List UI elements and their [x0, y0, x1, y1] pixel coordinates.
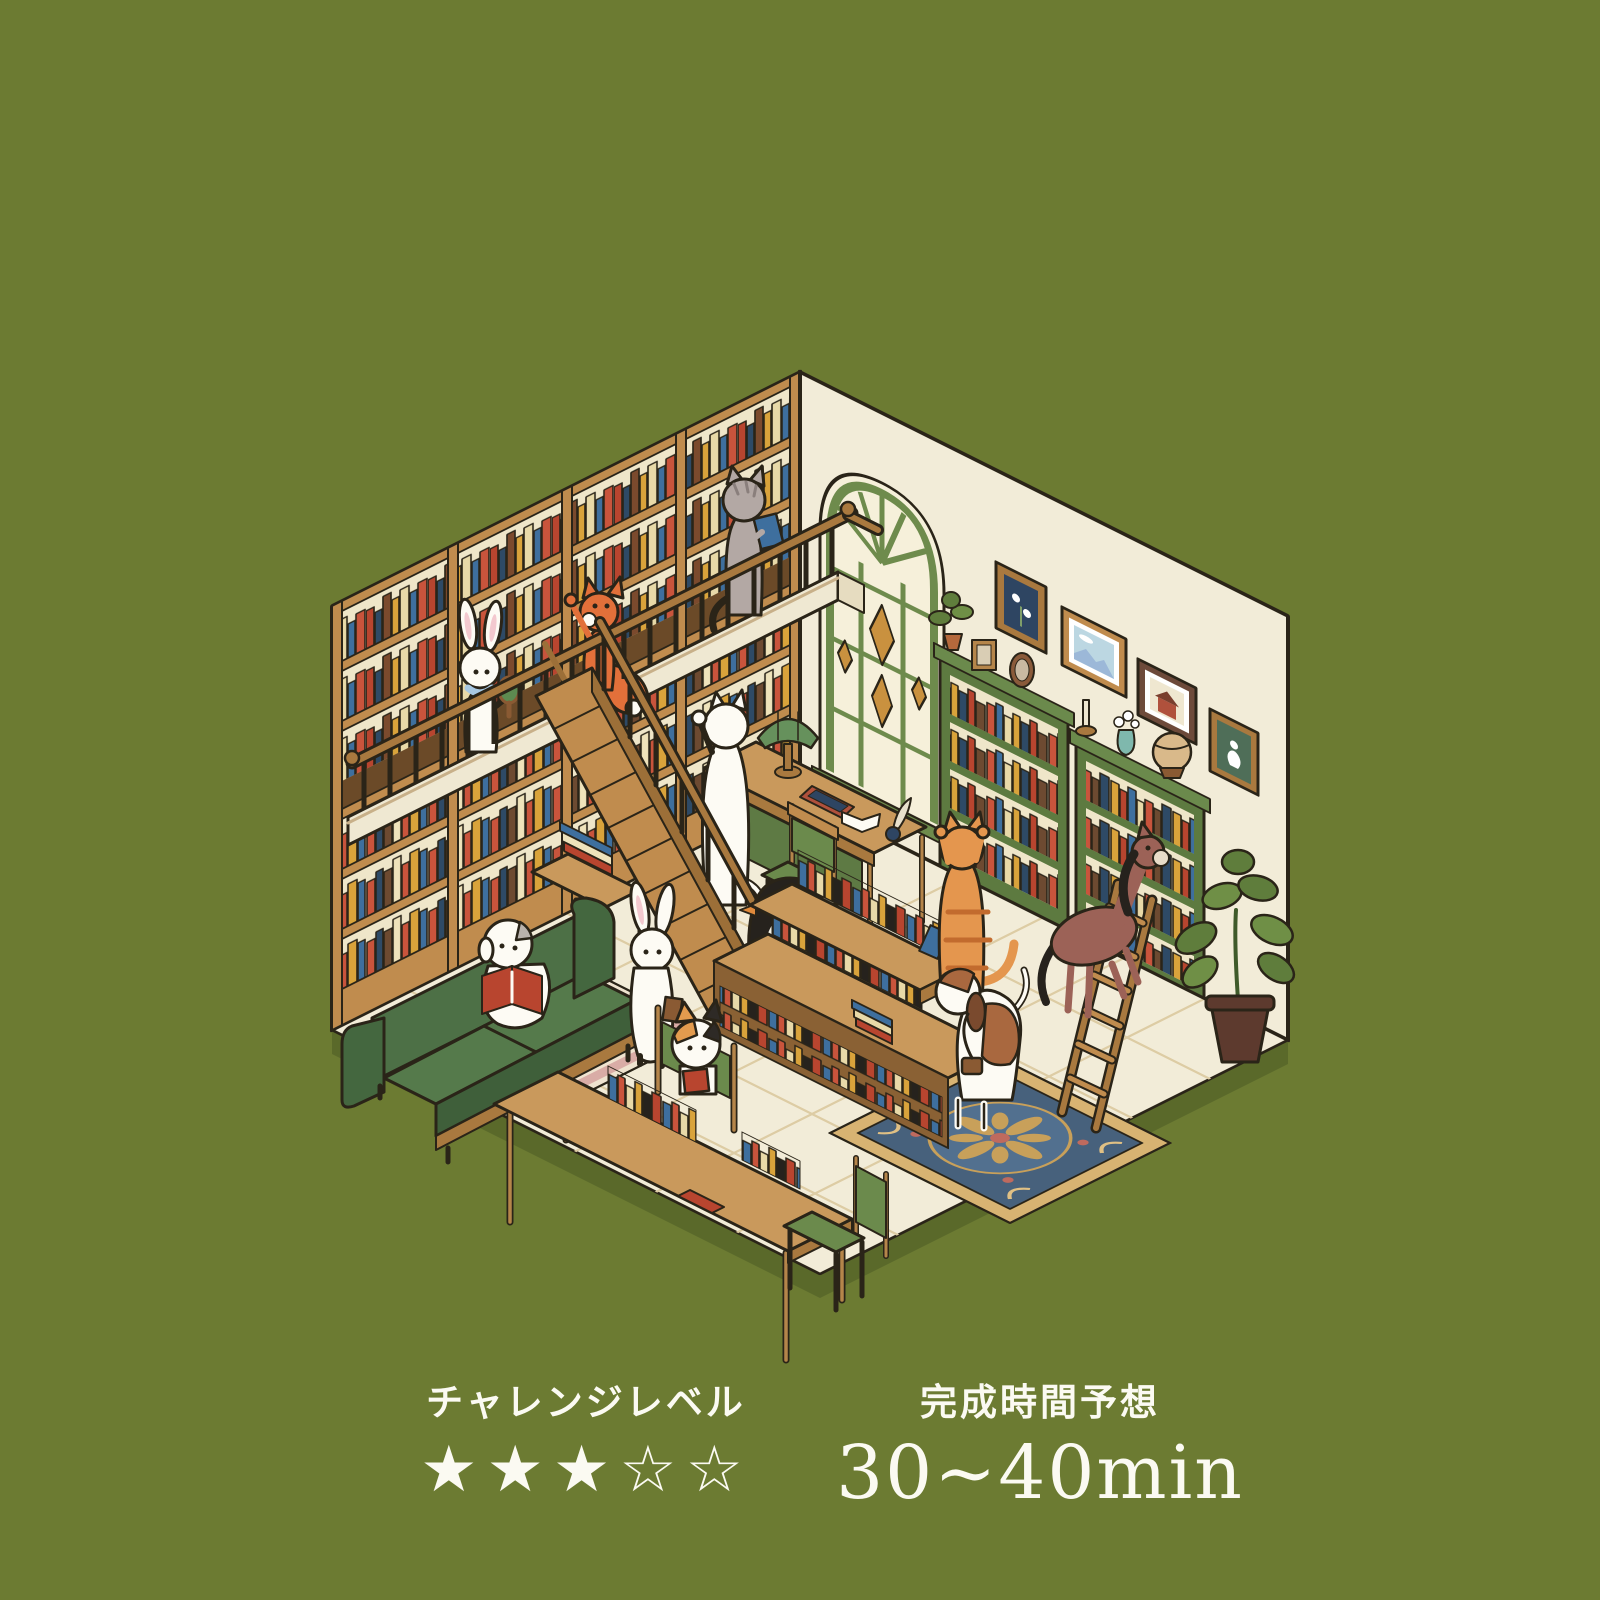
oval-frame: [1010, 653, 1034, 687]
poster-page: SCENE #01 図書館: [0, 0, 1600, 1600]
challenge-stars: ★★★☆☆: [376, 1438, 796, 1502]
time-label: 完成時間予想: [830, 1372, 1250, 1426]
challenge-label: チャレンジレベル: [376, 1372, 796, 1426]
time-value: 30~40min: [830, 1436, 1250, 1510]
library-illustration: [0, 0, 1600, 1600]
time-block: 完成時間予想 30~40min: [830, 1372, 1250, 1510]
small-photo-frame: [972, 640, 996, 670]
challenge-block: チャレンジレベル ★★★☆☆: [376, 1372, 796, 1502]
